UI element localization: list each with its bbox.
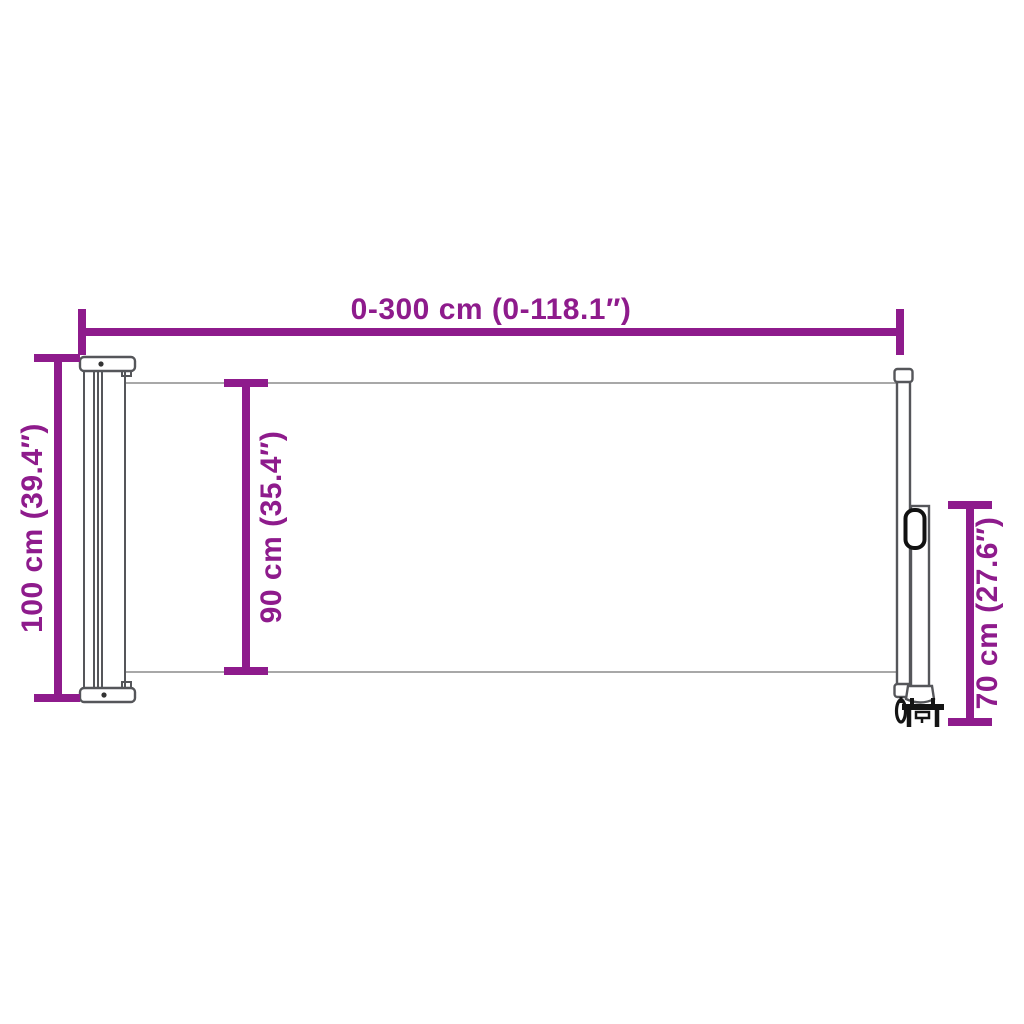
awning-cassette	[80, 357, 135, 702]
awning-fabric	[125, 383, 897, 672]
cassette-bottom-screw	[101, 692, 106, 697]
dimension-extension-width: 0-300 cm (0-118.1″)	[82, 293, 900, 355]
awning-dimension-diagram: 0-300 cm (0-118.1″) 100 cm (39.4″) 90 cm…	[0, 0, 1024, 1024]
dimension-post-height: 70 cm (27.6″)	[948, 505, 1004, 722]
cassette-bottom-cap	[80, 688, 135, 702]
front-bar-top-cap	[895, 369, 913, 382]
foot-clamp-nub	[910, 698, 914, 705]
dimension-fabric-height: 90 cm (35.4″)	[224, 383, 288, 671]
awning-handle	[906, 510, 925, 548]
post-height-label: 70 cm (27.6″)	[971, 517, 1004, 710]
foot-wing-knob	[897, 700, 906, 722]
foot-clamp-nub	[931, 698, 935, 705]
handle-grip	[906, 510, 925, 548]
cassette-top-cap	[80, 357, 135, 371]
total-height-label: 100 cm (39.4″)	[16, 423, 49, 633]
awning-drawing	[80, 357, 944, 727]
foot-clamp-bar	[902, 704, 944, 710]
dimension-total-height: 100 cm (39.4″)	[16, 358, 80, 698]
extension-width-label: 0-300 cm (0-118.1″)	[351, 293, 632, 326]
fabric-height-label: 90 cm (35.4″)	[255, 431, 288, 624]
foot-center-screw	[916, 712, 929, 718]
cassette-top-screw	[98, 361, 103, 366]
diagram-canvas: 0-300 cm (0-118.1″) 100 cm (39.4″) 90 cm…	[0, 0, 1024, 1024]
